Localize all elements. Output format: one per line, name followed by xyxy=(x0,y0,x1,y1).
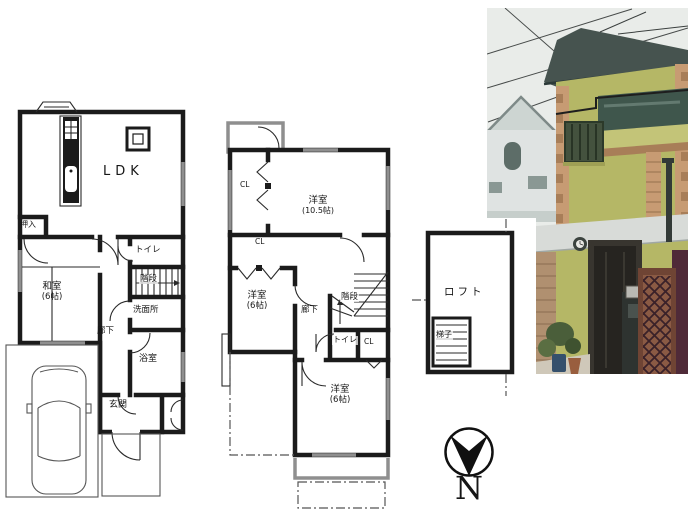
room-label-yoshitsu-large: 洋室 xyxy=(286,196,350,206)
room-label-yoshitsu-mid: 洋室 xyxy=(234,291,280,301)
porch xyxy=(228,123,283,152)
door-arc xyxy=(258,127,279,148)
parking-space xyxy=(6,345,98,497)
lattice-gate xyxy=(638,250,688,374)
compass-north-label: N xyxy=(450,471,488,506)
room-label-hallway-2f: 廊下 xyxy=(301,306,318,315)
room-label-washitsu: 和室 xyxy=(28,282,76,292)
room-label-closet-mid: CL xyxy=(255,238,264,246)
room-label-bathroom: 浴室 xyxy=(139,355,157,365)
room-label-loft: ロフト xyxy=(444,287,485,298)
room-label-ldk: LDK xyxy=(103,165,144,179)
room-label-hallway-1f: 廊下 xyxy=(97,327,114,336)
kitchen-counter-icon xyxy=(60,116,81,206)
balcony-dashline xyxy=(298,482,385,508)
room-label-closet-top: CL xyxy=(240,181,249,189)
downspout xyxy=(666,162,672,242)
room-label-yoshitsu-bottom-size: (6帖) xyxy=(316,396,364,405)
shuttered-window xyxy=(563,122,605,166)
room-label-yoshitsu-bottom: 洋室 xyxy=(316,385,364,395)
room-label-stairs-1f: 階段 xyxy=(139,275,158,284)
loft-plan xyxy=(412,219,512,396)
room-label-washitsu-size: (6帖) xyxy=(28,293,76,302)
lower-roof-dashline xyxy=(230,352,295,455)
photo-main-house xyxy=(536,12,688,374)
room-label-oshiire: 押入 xyxy=(20,221,36,230)
room-label-toilet-2f: トイレ xyxy=(332,336,358,345)
entrance-approach xyxy=(102,434,160,496)
flower-pot xyxy=(552,354,566,372)
room-label-closet-small: CL xyxy=(364,338,373,346)
room-label-toilet-1f: トイレ xyxy=(135,246,161,255)
entry-door-arc xyxy=(112,432,140,460)
plan-drawing xyxy=(0,0,690,518)
room-label-ladder: 梯子 xyxy=(435,331,453,340)
room-label-yoshitsu-mid-size: (6帖) xyxy=(234,302,280,311)
room-label-yoshitsu-large-size: (10.5帖) xyxy=(286,207,350,216)
car-icon xyxy=(27,366,91,494)
floor-plan-sheet: LDK 押入 和室 (6帖) トイレ 階段 洗面所 廊下 浴室 玄関 CL 洋室… xyxy=(0,0,690,518)
room-label-stairs-2f: 階段 xyxy=(340,293,359,302)
balcony-outline xyxy=(295,458,388,478)
room-label-washroom: 洗面所 xyxy=(133,306,159,315)
room-label-entrance: 玄関 xyxy=(109,401,127,411)
